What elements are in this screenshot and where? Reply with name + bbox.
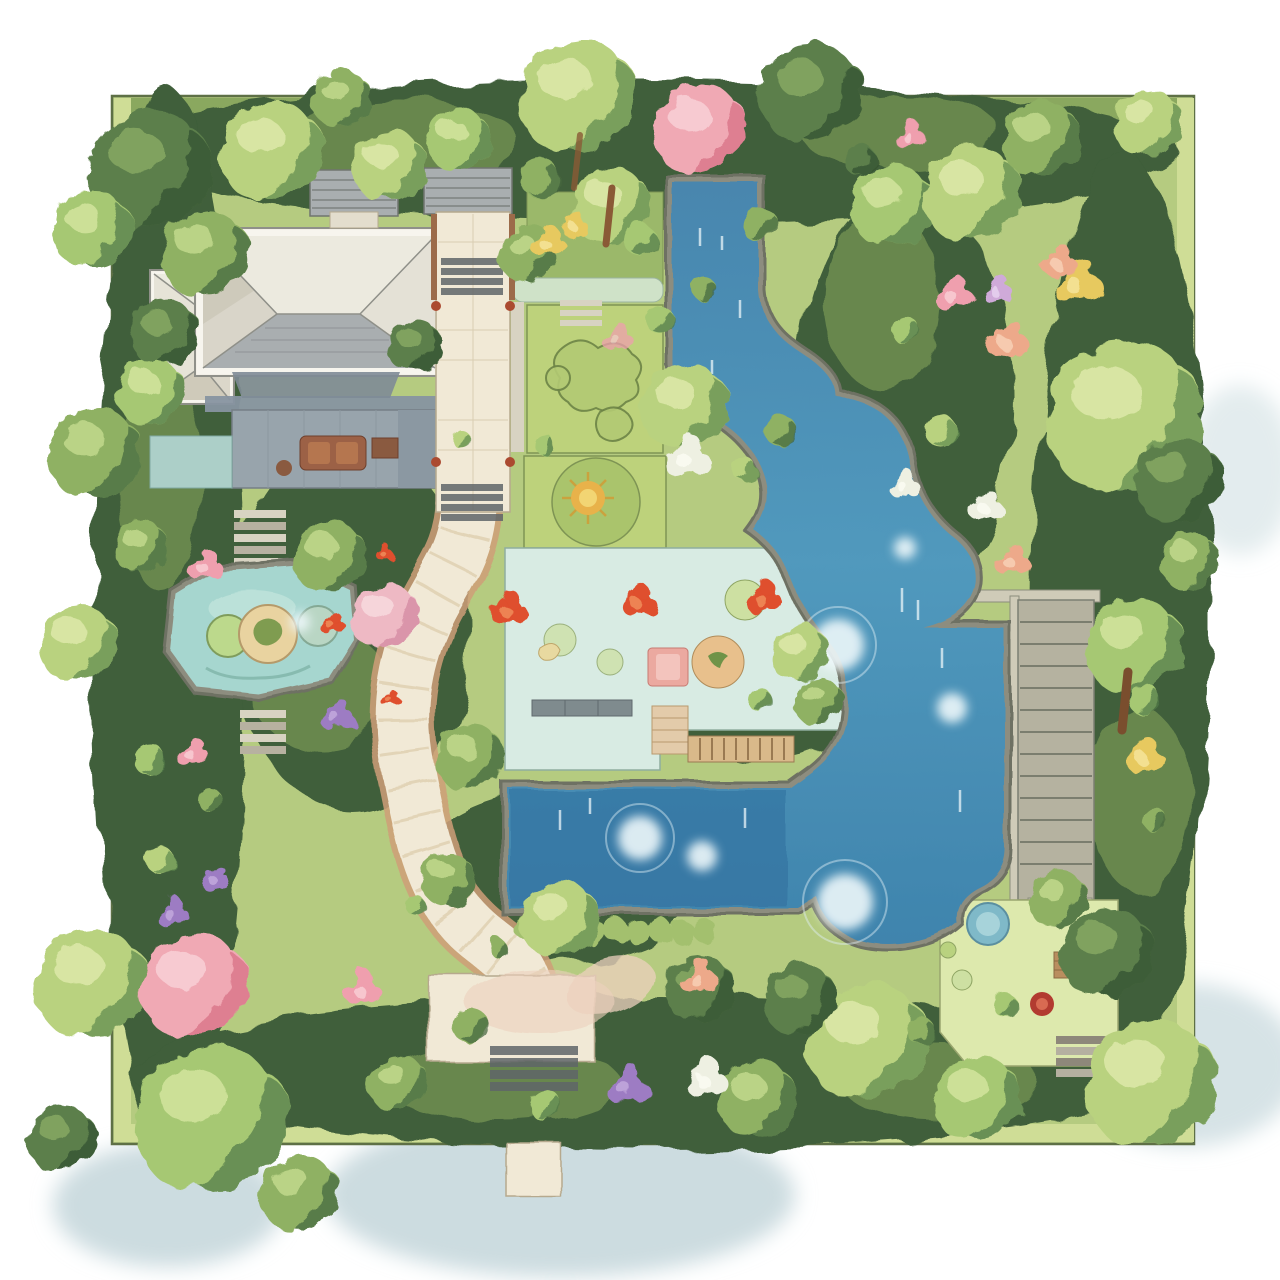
reflecting-pool — [150, 436, 232, 488]
garden-plan-illustration — [0, 0, 1280, 1280]
porch-roof — [232, 372, 400, 398]
parterre-steps — [560, 300, 602, 326]
boardwalk — [688, 736, 794, 762]
tree — [260, 1155, 338, 1229]
side-table — [276, 460, 292, 476]
tree — [27, 1106, 96, 1171]
plan-canvas — [0, 0, 1280, 1280]
path-exit-stub — [506, 1142, 560, 1196]
stone-bench — [532, 700, 632, 716]
grill — [372, 438, 398, 458]
